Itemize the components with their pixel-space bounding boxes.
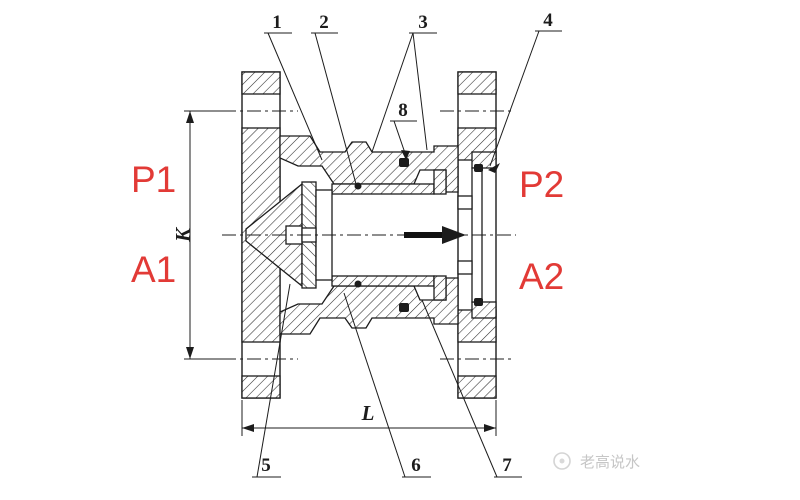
seat-point-bottom — [355, 281, 362, 288]
callout-3-leader-b — [413, 33, 427, 150]
callout-3: 3 — [372, 12, 437, 152]
seal-bottom-right — [474, 298, 483, 306]
watermark-text: 老高说水 — [580, 454, 640, 471]
flow-arrow-head — [442, 226, 466, 244]
callout-8-number: 8 — [398, 100, 408, 121]
callout-6-number: 6 — [411, 455, 421, 476]
dim-l-arrow-right — [484, 424, 496, 432]
port-label-p1: P1 — [131, 159, 176, 200]
seal-top-left — [399, 158, 409, 167]
bore-wall-bottom — [332, 276, 434, 286]
callout-2-number: 2 — [319, 12, 329, 33]
callout-3-leader-a — [372, 33, 413, 152]
port-label-p2: P2 — [519, 164, 564, 205]
watermark-logo-dot — [560, 459, 565, 464]
dimension-l: L — [242, 400, 496, 436]
inlet-flange-hatch-top — [242, 72, 280, 94]
end-plate-tab-bottom — [458, 261, 472, 274]
valve-drawing-svg: K L 1 2 3 4 8 5 — [0, 0, 800, 500]
drawing-page: K L 1 2 3 4 8 5 — [0, 0, 800, 500]
callout-5-number: 5 — [261, 455, 271, 476]
dim-k-arrow-bottom — [186, 347, 194, 359]
end-plate-tab-top — [458, 196, 472, 209]
dimension-k-label: K — [171, 226, 195, 243]
outlet-flange-hatch-bottom — [458, 376, 496, 398]
bore-step-top — [434, 170, 446, 194]
dimension-l-label: L — [361, 401, 375, 425]
callout-4: 4 — [488, 10, 562, 173]
outlet-flange-hatch-top — [458, 72, 496, 94]
dimension-k: K — [171, 111, 226, 359]
dim-k-arrow-top — [186, 111, 194, 123]
callout-6-leader — [344, 293, 405, 477]
callout-7-number: 7 — [502, 455, 512, 476]
dim-l-arrow-left — [242, 424, 254, 432]
callout-1-number: 1 — [272, 12, 282, 33]
valve-section-view — [222, 72, 516, 398]
port-label-a1: A1 — [131, 249, 176, 290]
seal-top-right — [474, 164, 483, 172]
callout-4-number: 4 — [543, 10, 553, 31]
port-label-a2: A2 — [519, 256, 564, 297]
bore-step-bottom — [434, 276, 446, 300]
flow-direction-arrow — [404, 226, 466, 244]
watermark: 老高说水 — [554, 453, 640, 471]
seal-bottom-left — [399, 303, 409, 312]
callout-4-leader — [490, 31, 539, 166]
callout-3-number: 3 — [418, 12, 428, 33]
inlet-flange-hatch-bottom — [242, 376, 280, 398]
callout-8: 8 — [390, 100, 417, 160]
bore-wall-top — [332, 184, 434, 194]
